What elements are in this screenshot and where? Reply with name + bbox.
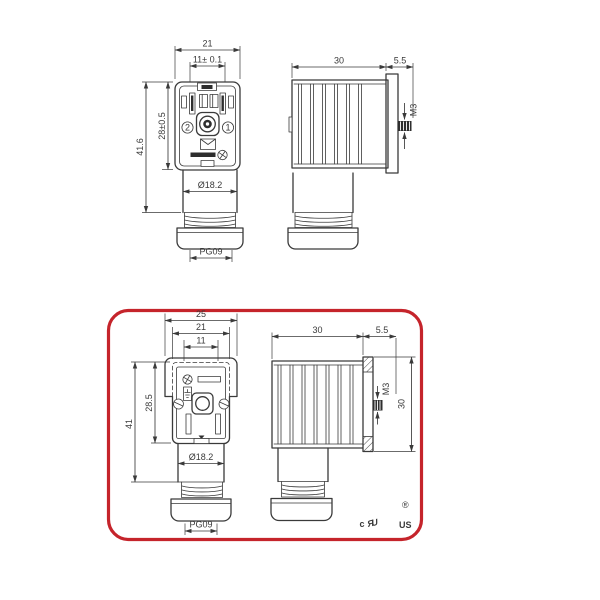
dim-label: M3 (381, 383, 391, 396)
terminal-1-label: 1 (225, 123, 230, 133)
dim-label: 30 (397, 399, 407, 409)
dim-label: 5.5 (376, 325, 389, 335)
cable-entry-neck (178, 444, 224, 483)
bottom-side-view: 30 5.5 30 M3 (271, 325, 416, 521)
bottom-tab (194, 439, 209, 444)
dim-label: 25 (196, 309, 206, 319)
terminal-2-label: 2 (185, 123, 190, 133)
dim-label: M3 (409, 104, 419, 117)
dim-label: Ø18.2 (189, 452, 214, 462)
gland-threads (178, 482, 224, 498)
earth-symbol-tag (184, 387, 192, 401)
dim-top-height-outer: 41.6 (135, 82, 181, 213)
dim-label: 30 (334, 56, 344, 66)
ground-bar (191, 153, 216, 158)
center-fixing-hole (197, 113, 220, 136)
dim-bottom-diameter: Ø18.2 (178, 452, 224, 464)
gland-nut (271, 499, 332, 521)
gland-threads (295, 213, 352, 228)
dim-top-diameter: Ø18.2 (183, 180, 237, 192)
technical-drawing-page: 21 11± 0.1 41.6 28±0.5 (0, 0, 600, 600)
bottom-front-view: 25 21 11 41 28.5 (124, 309, 237, 535)
dim-bottom-height-outer: 41 (124, 362, 178, 482)
dim-label: PG09 (189, 520, 212, 530)
gland-nut (288, 228, 358, 249)
dim-label: 5.5 (394, 56, 407, 66)
top-side-view: 30 5.5 M3 (288, 56, 419, 250)
gasket-window (201, 139, 216, 150)
fixing-screw (373, 400, 383, 411)
dim-label: 41 (124, 419, 134, 429)
dim-label: 28±0.5 (157, 112, 167, 139)
dim-bottom-width-flange: 25 (165, 309, 237, 356)
fixing-screw (398, 121, 412, 131)
dim-bottom-width-inner: 11 (184, 336, 218, 362)
gland-threads (185, 213, 236, 228)
ul-logo: ЯU (365, 517, 379, 529)
top-front-view: 21 11± 0.1 41.6 28±0.5 (135, 39, 243, 263)
dim-label: PG09 (199, 247, 222, 257)
flange-section-top (363, 357, 373, 372)
dim-label: 21 (202, 39, 212, 49)
terminal-2: 2 (182, 122, 193, 133)
dim-label: 30 (312, 325, 322, 335)
dim-label: 11 (196, 336, 205, 346)
gland-threads (278, 482, 328, 498)
technical-drawing-canvas: 21 11± 0.1 41.6 28±0.5 (0, 0, 600, 600)
dim-bottom-gland: PG09 (185, 520, 217, 536)
bottom-tab (201, 161, 214, 167)
dim-bottom-height-inner: 28.5 (144, 362, 171, 443)
cable-entry-neck (293, 173, 353, 213)
dim-label: 11± 0.1 (193, 55, 222, 65)
dim-label: 28.5 (144, 394, 154, 412)
ul-registered-icon: ® (402, 500, 409, 510)
housing-body (292, 80, 388, 168)
ul-us-label: US (399, 520, 412, 530)
keyway-tab (198, 83, 217, 91)
contact-slot-right (216, 414, 221, 434)
terminal-1: 1 (222, 122, 233, 133)
flange-section-bottom (363, 437, 373, 452)
contact-slot-left (186, 414, 191, 434)
top-slot (198, 377, 221, 383)
gland-nut (171, 499, 231, 521)
dim-top-height-inner: 28±0.5 (157, 82, 173, 170)
ul-c-label: c (359, 519, 364, 529)
dim-label: Ø18.2 (198, 180, 223, 190)
dim-label: 21 (196, 322, 206, 332)
dim-label: 41.6 (135, 138, 145, 156)
cable-entry-neck (278, 448, 328, 482)
housing-body (272, 361, 365, 448)
side-latch (289, 117, 292, 132)
highlight-frame (109, 311, 422, 540)
ul-certification-mark: c ЯU ® US (359, 500, 411, 530)
center-fixing-hole (192, 393, 213, 414)
